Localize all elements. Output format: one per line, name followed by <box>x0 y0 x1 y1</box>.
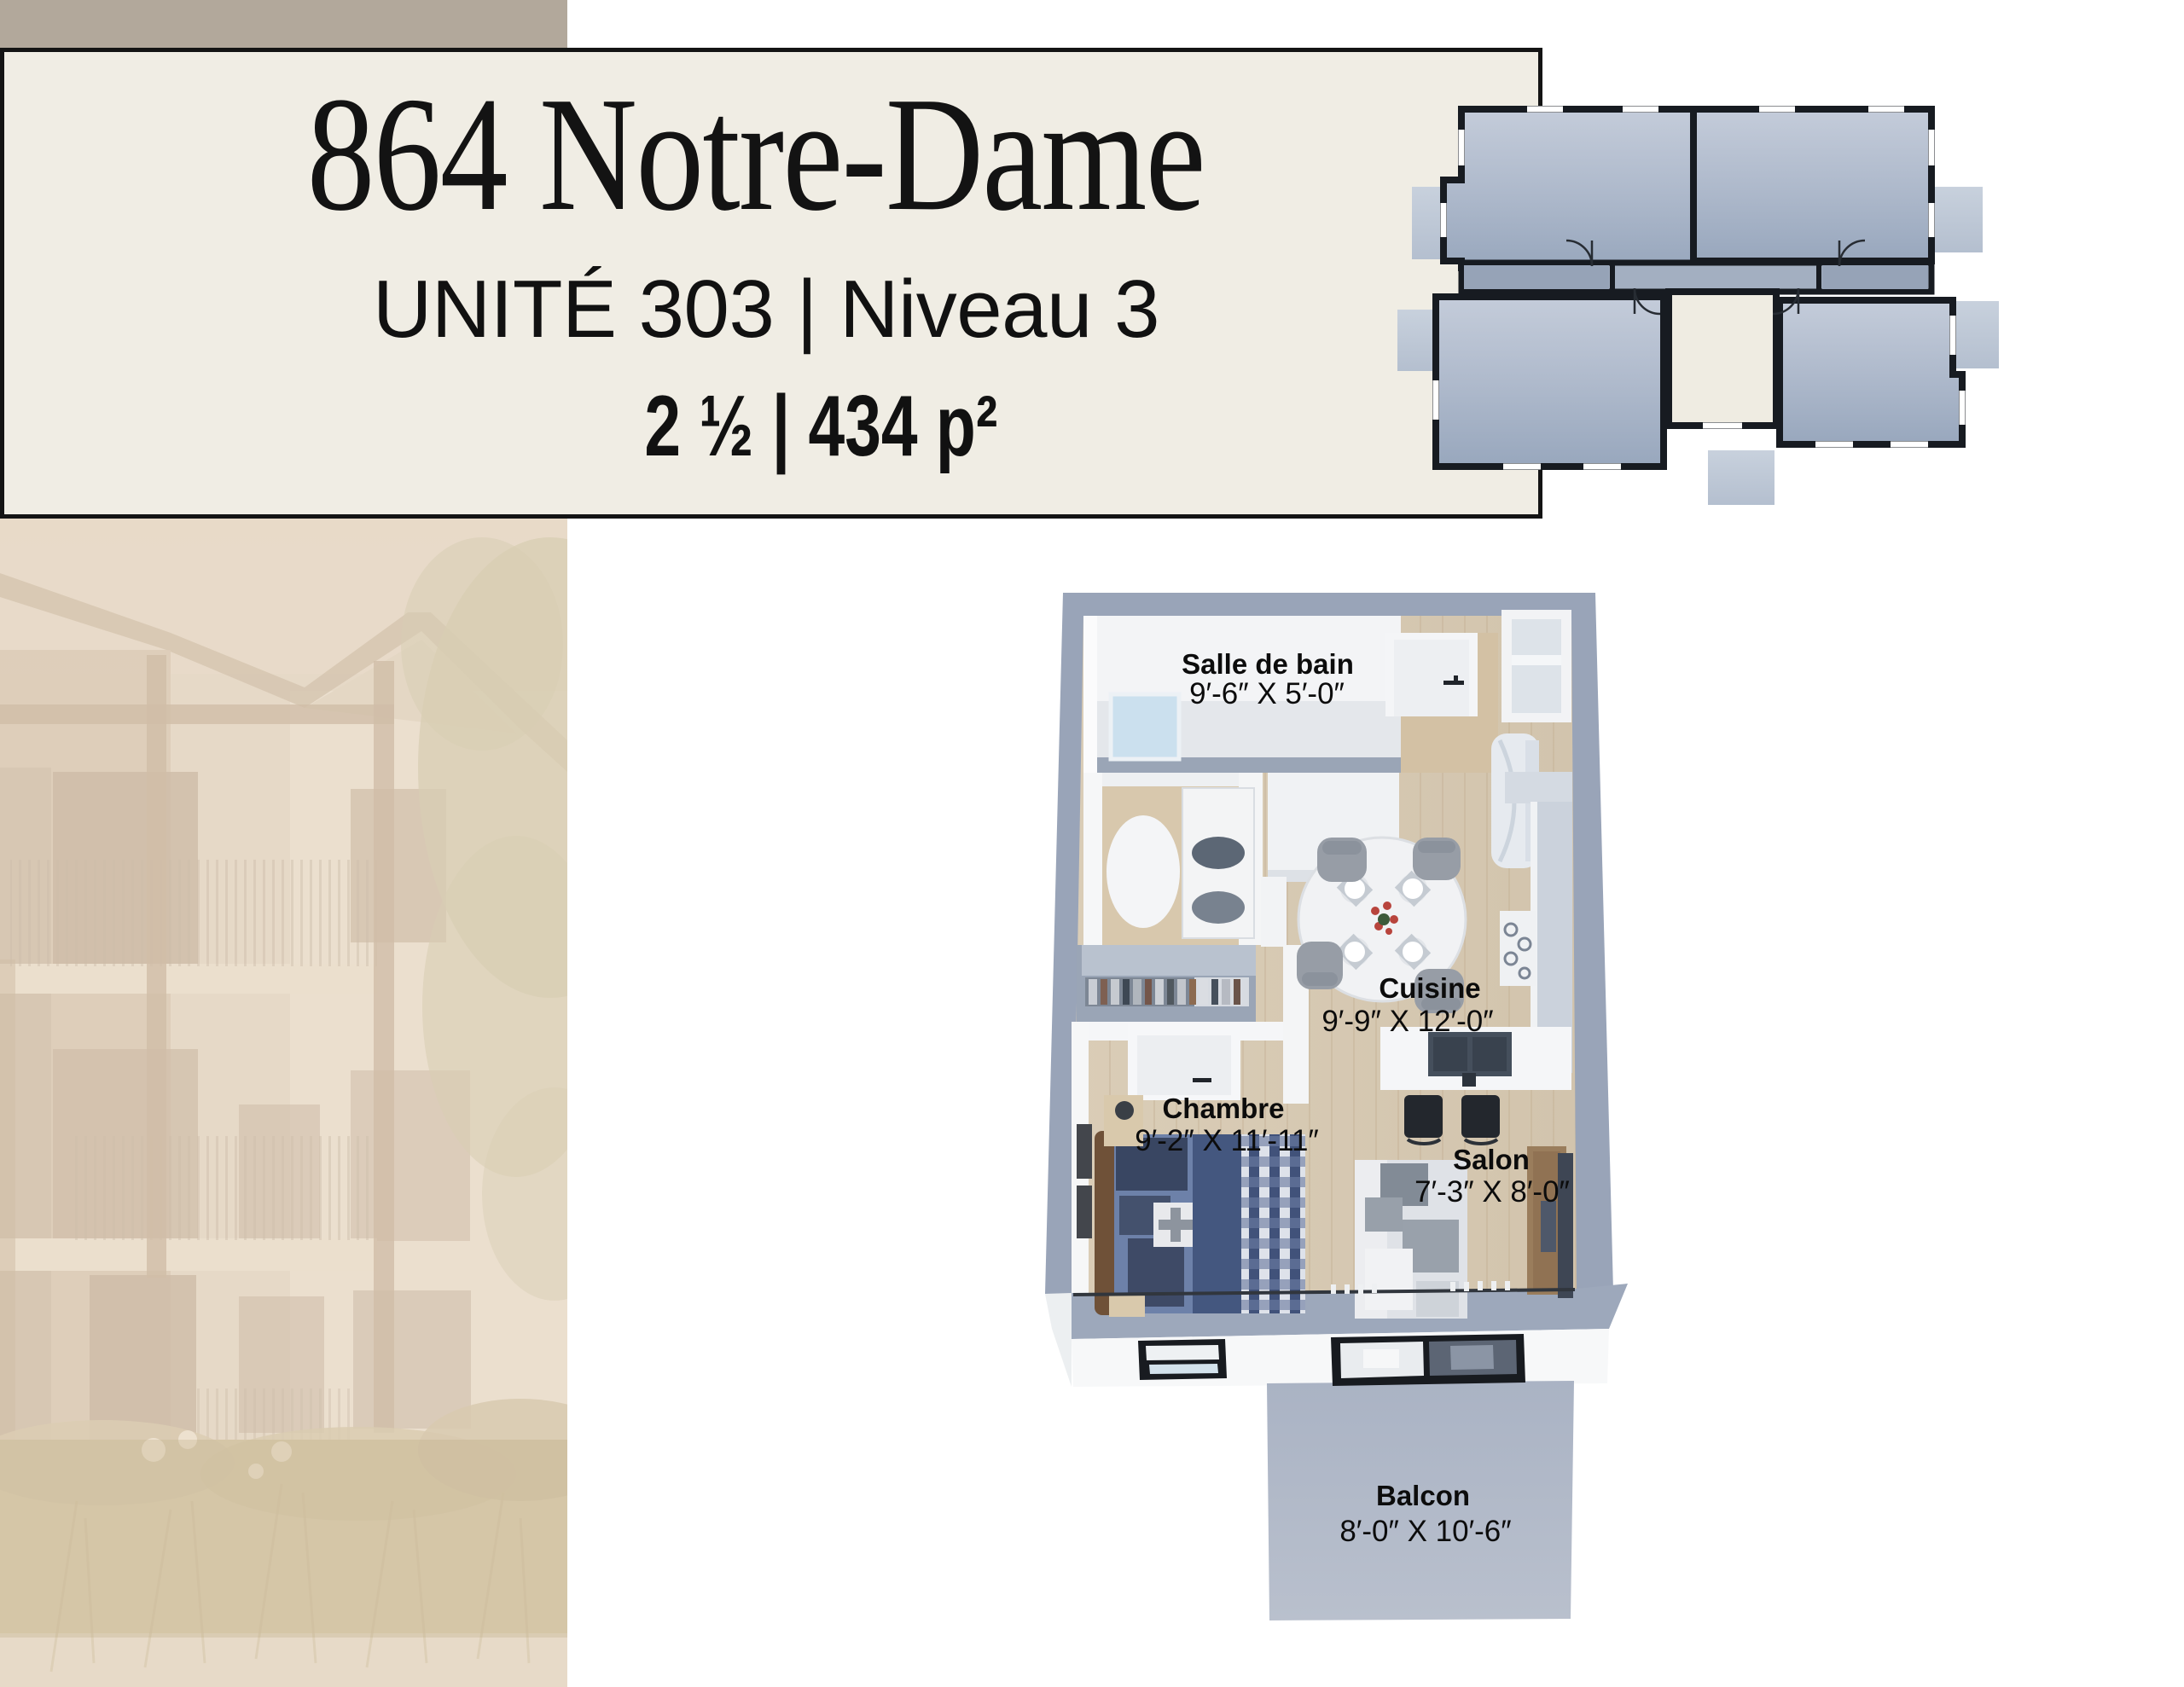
svg-text:Chambre: Chambre <box>1162 1093 1284 1124</box>
svg-text:Cuisine: Cuisine <box>1379 972 1480 1004</box>
svg-text:Salon: Salon <box>1453 1144 1530 1175</box>
svg-text:Balcon: Balcon <box>1376 1480 1470 1511</box>
svg-text:8′-0″ X 10′-6″: 8′-0″ X 10′-6″ <box>1339 1515 1511 1548</box>
svg-text:Salle de bain: Salle de bain <box>1182 648 1354 680</box>
svg-text:9′-9″ X 12′-0″: 9′-9″ X 12′-0″ <box>1321 1005 1493 1038</box>
svg-text:9′-6″ X 5′-0″: 9′-6″ X 5′-0″ <box>1189 677 1345 710</box>
svg-text:9′-2″ X 11′-11″: 9′-2″ X 11′-11″ <box>1135 1124 1319 1157</box>
svg-text:7′-3″ X 8′-0″: 7′-3″ X 8′-0″ <box>1414 1175 1570 1209</box>
